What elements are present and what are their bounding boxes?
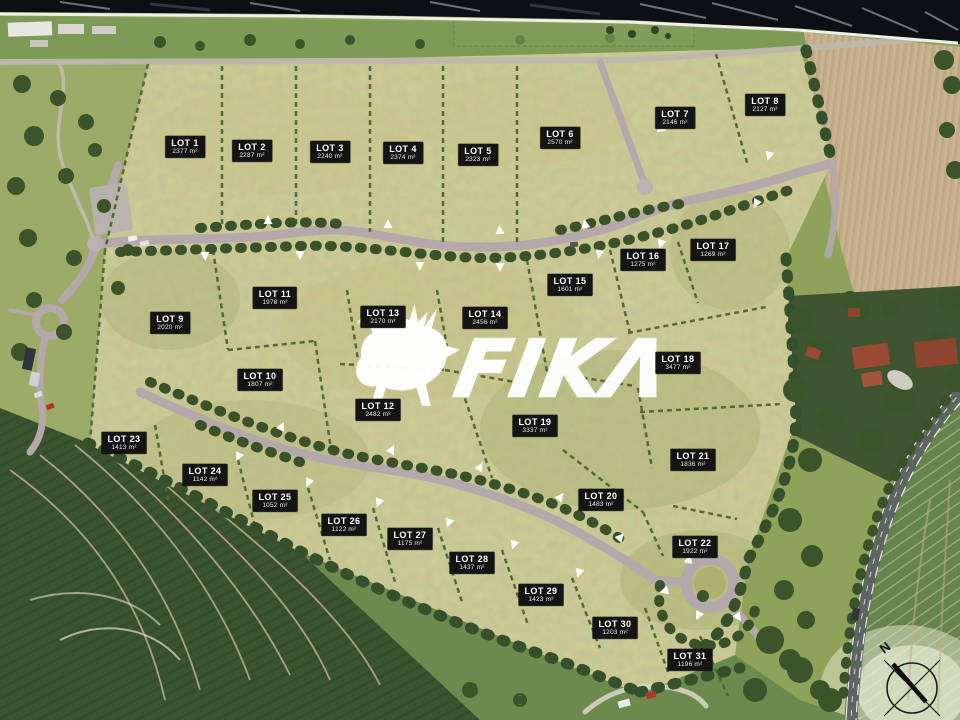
parking [89, 183, 133, 236]
watermark-text: FIKΛ [449, 324, 676, 415]
aerial-photo: FIKΛ N [0, 0, 960, 720]
site-plan-photo: FIKΛ N LOT 12377 m²LOT 22287 m²LOT 32240… [0, 0, 960, 720]
